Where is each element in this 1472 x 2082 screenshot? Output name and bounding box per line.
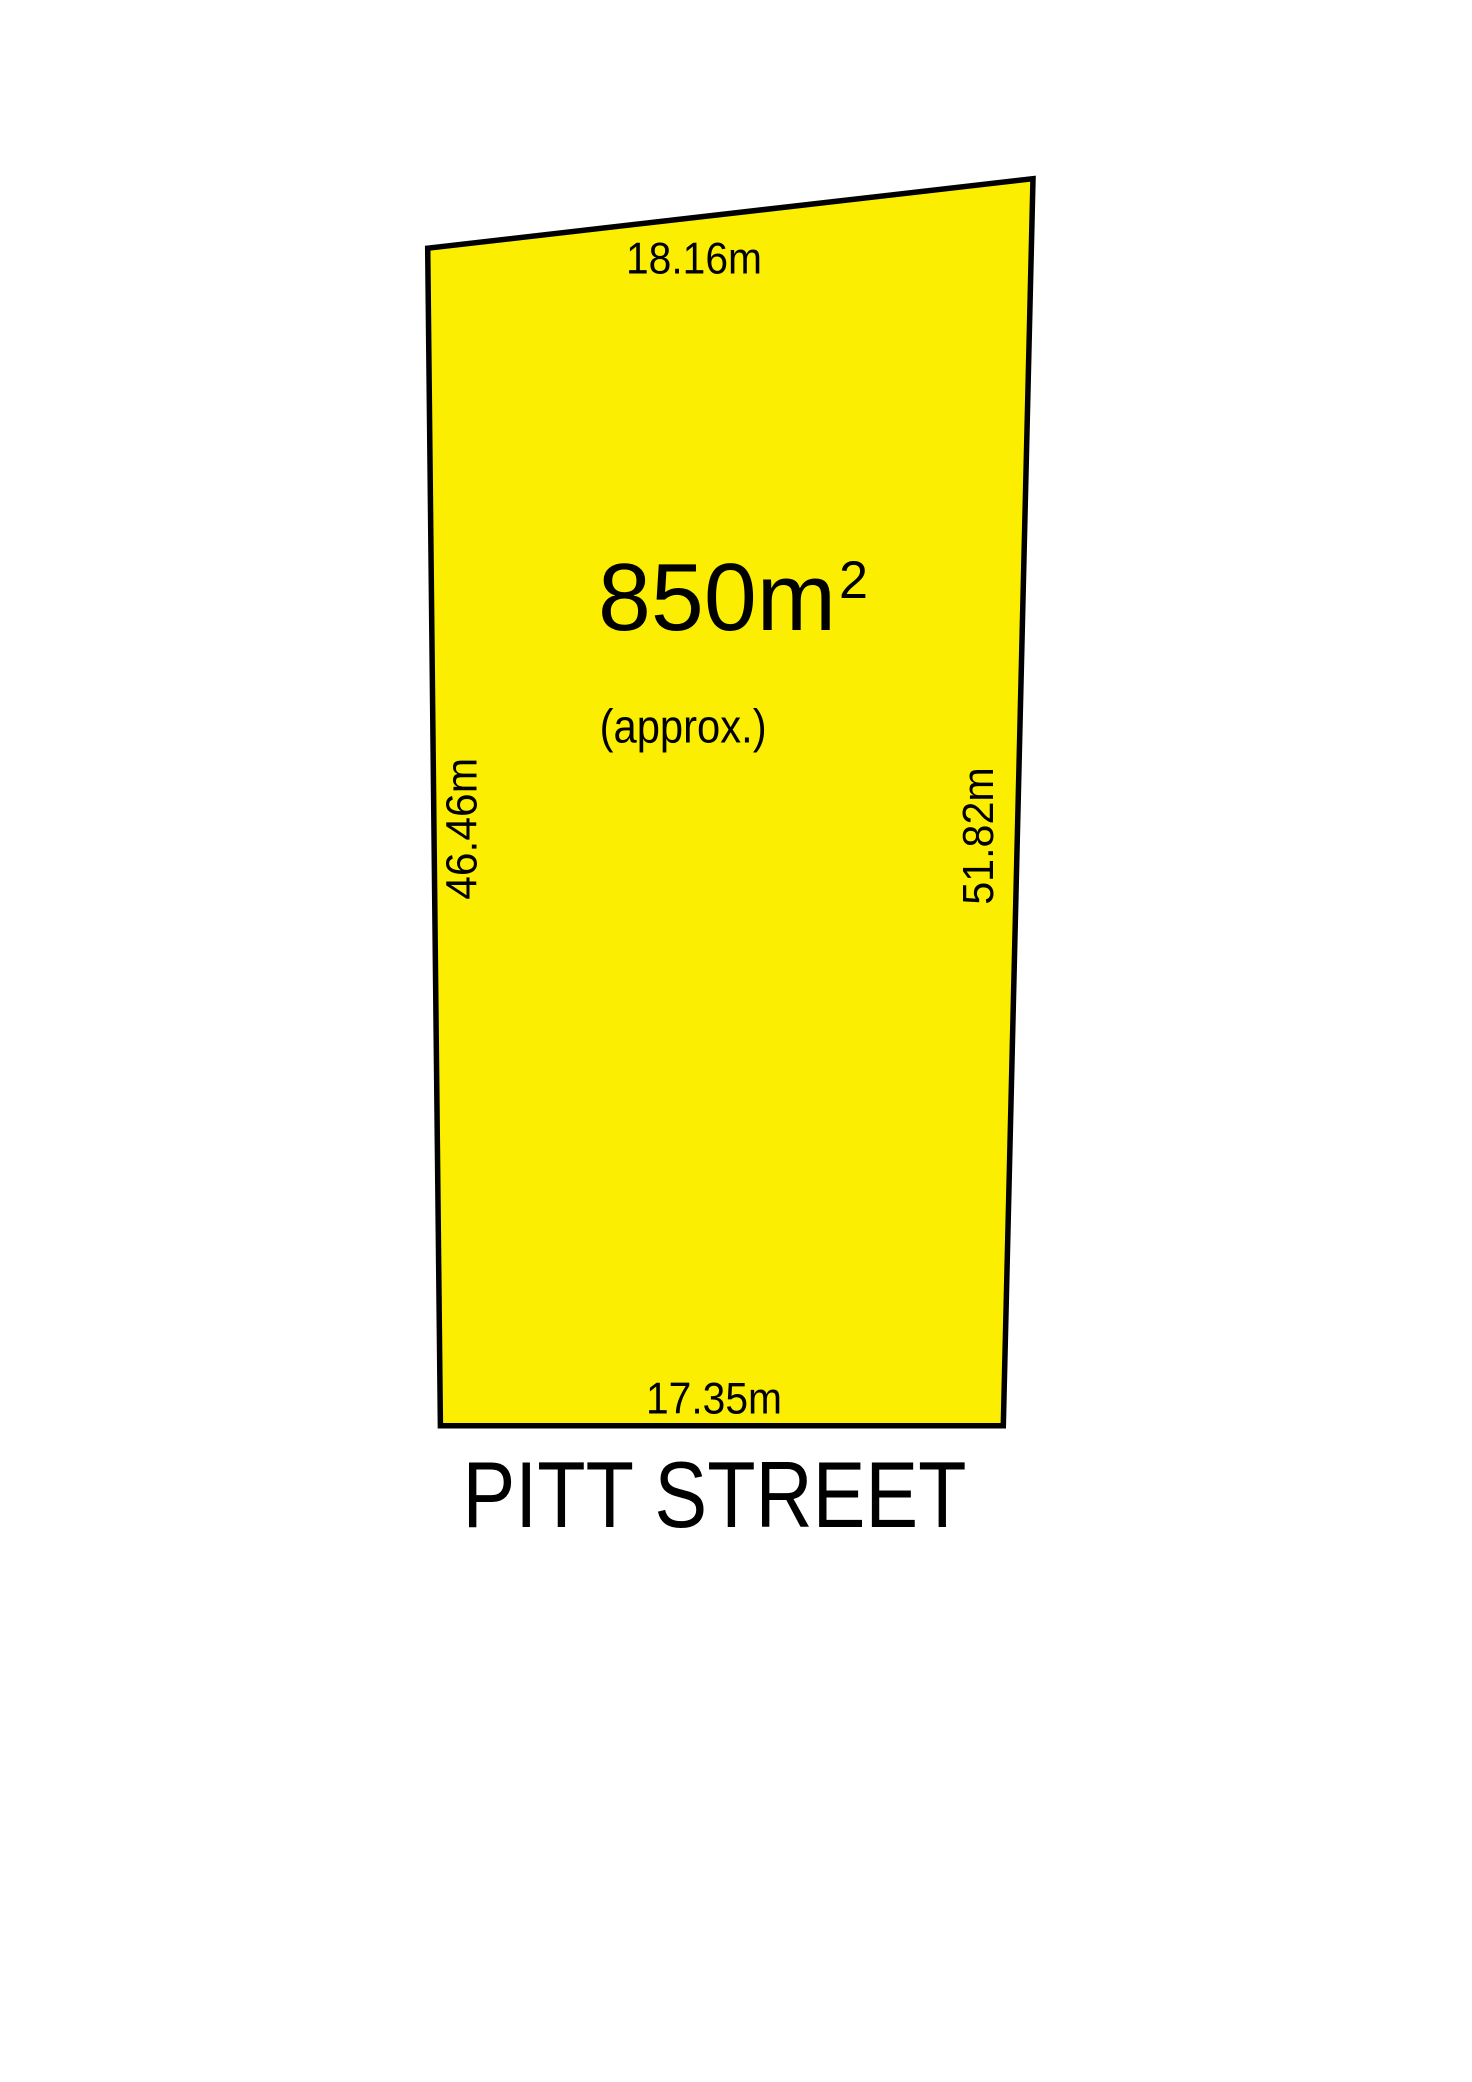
- svg-text:17.35m: 17.35m: [646, 1374, 782, 1424]
- svg-text:2: 2: [839, 551, 868, 610]
- svg-text:(approx.): (approx.): [600, 700, 767, 753]
- svg-text:51.82m: 51.82m: [955, 767, 1003, 905]
- svg-text:46.46m: 46.46m: [439, 758, 487, 900]
- svg-text:PITT STREET: PITT STREET: [463, 1442, 967, 1547]
- svg-text:18.16m: 18.16m: [626, 235, 762, 284]
- svg-text:850m: 850m: [598, 545, 836, 651]
